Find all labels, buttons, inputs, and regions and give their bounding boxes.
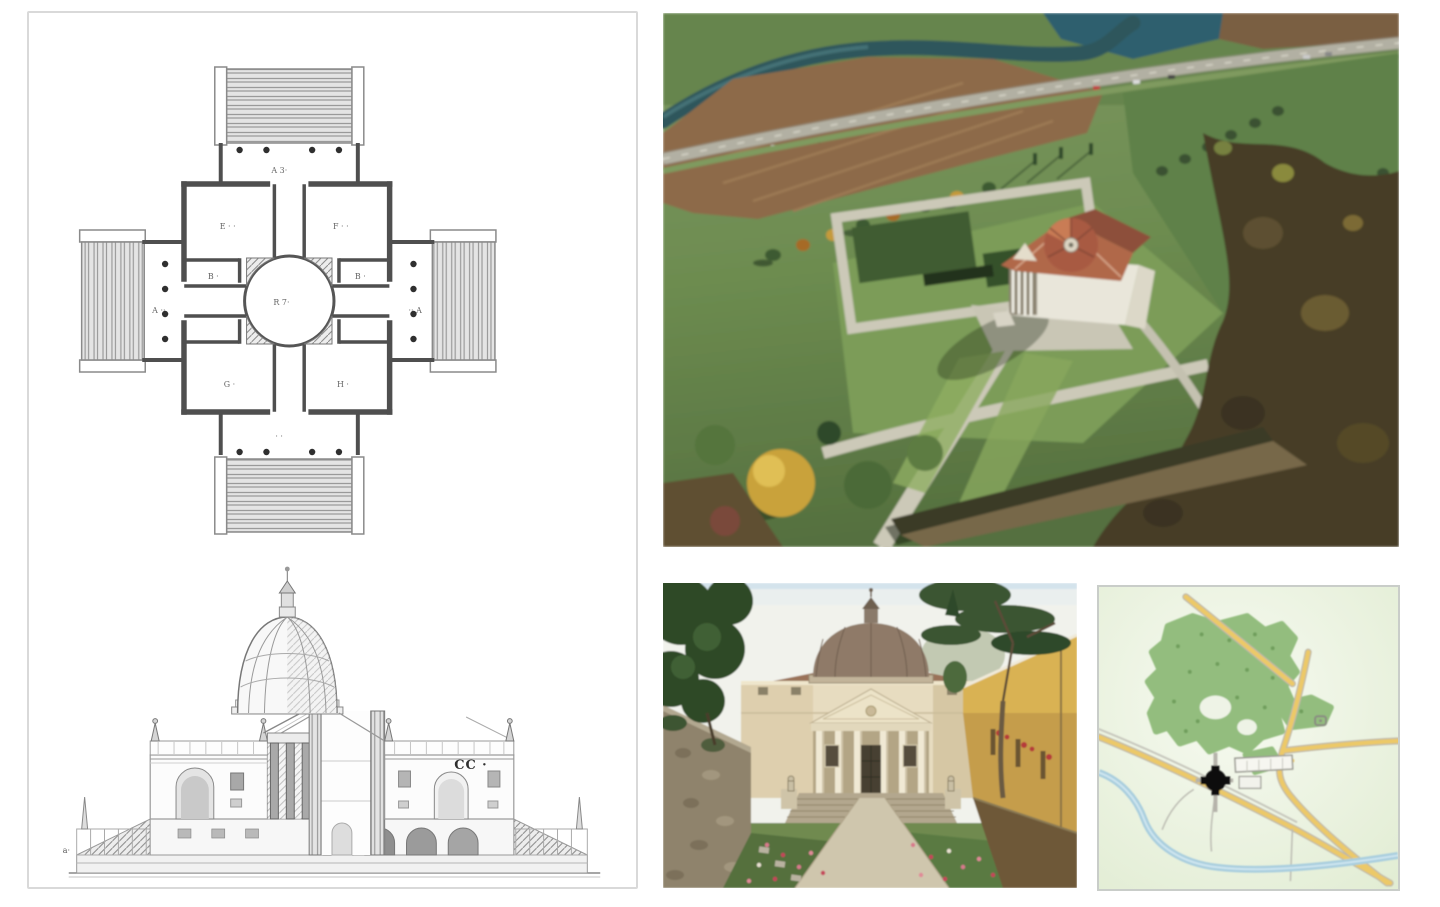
facade-lantern: [864, 609, 878, 623]
left-obelisk: [82, 797, 88, 829]
facade-photo-panel: [663, 583, 1077, 888]
plan-mark: G ·: [224, 380, 235, 389]
section-label-a: a·: [63, 846, 70, 855]
podium: [77, 855, 588, 873]
entablature: [811, 723, 931, 731]
pine-trunk: [1001, 701, 1003, 798]
plan-mark: E · ·: [220, 222, 236, 231]
aerial-photo-panel: [663, 13, 1399, 547]
plan-mark: ·· A: [408, 306, 422, 315]
barchessa-building: [1235, 755, 1293, 772]
facade-photo: [663, 583, 1077, 888]
floor-plan: A 3· R 7· A ·· ·· A E · · F · · B · B · …: [80, 67, 496, 534]
cross-section: CC · a·: [63, 567, 600, 877]
right-stair-ramp: [514, 819, 588, 855]
left-stair-ramp: [77, 819, 151, 855]
plan-mark: · ·: [275, 432, 283, 441]
aerial-photo: [663, 13, 1399, 547]
basement-windows: [178, 829, 258, 838]
south-portico-stairs: [215, 457, 364, 534]
location-map: [1099, 587, 1398, 889]
location-map-panel: [1097, 585, 1400, 891]
plan-mark: A 3·: [270, 166, 287, 175]
west-portico-stairs: [80, 230, 146, 372]
plan-mark: B ·: [355, 272, 366, 281]
roof-statues-right: [385, 719, 514, 741]
plan-mark: R 7·: [273, 298, 289, 307]
plan-mark: A ··: [151, 306, 165, 315]
section-label-cc: CC ·: [454, 758, 487, 773]
dome-lantern: [281, 593, 293, 607]
north-portico-stairs: [215, 67, 364, 145]
plan-mark: B ·: [208, 272, 219, 281]
east-portico-stairs: [430, 230, 496, 372]
plan-section-drawing-panel: A 3· R 7· A ·· ·· A E · · F · · B · B · …: [27, 11, 638, 889]
right-obelisk: [576, 797, 582, 829]
dome: [232, 567, 343, 714]
dome-finial: [285, 567, 290, 572]
facade-window-right: [903, 745, 917, 767]
roof-statues-left: [151, 719, 267, 741]
right-window: [399, 771, 411, 787]
plan-mark: F · ·: [333, 222, 349, 231]
facade-window-left: [825, 745, 839, 767]
rotunda-section: [309, 711, 385, 855]
plan-mark: H ·: [337, 380, 349, 389]
left-window: [231, 773, 244, 790]
plan-room-marks: A 3· R 7· A ·· ·· A E · · F · · B · B · …: [151, 166, 422, 441]
architectural-drawing: A 3· R 7· A ·· ·· A E · · F · · B · B · …: [29, 13, 636, 887]
